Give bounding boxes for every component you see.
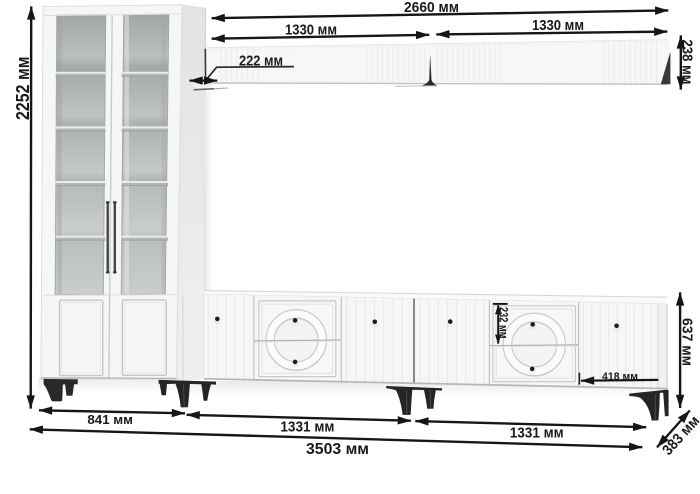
svg-text:1331 мм: 1331 мм	[510, 425, 564, 442]
svg-text:2252 мм: 2252 мм	[12, 56, 33, 120]
svg-text:222 мм: 222 мм	[239, 53, 283, 69]
svg-text:1330 мм: 1330 мм	[532, 17, 584, 34]
svg-text:418 мм: 418 мм	[602, 371, 638, 383]
svg-text:1330 мм: 1330 мм	[285, 21, 337, 38]
svg-text:232 мм: 232 мм	[496, 307, 508, 339]
svg-text:3503 мм: 3503 мм	[306, 441, 369, 458]
svg-text:637 мм: 637 мм	[678, 318, 695, 366]
svg-text:238 мм: 238 мм	[678, 40, 695, 85]
svg-text:841 мм: 841 мм	[87, 413, 133, 427]
svg-text:1331 мм: 1331 мм	[280, 419, 334, 436]
svg-text:2660 мм: 2660 мм	[404, 0, 459, 16]
